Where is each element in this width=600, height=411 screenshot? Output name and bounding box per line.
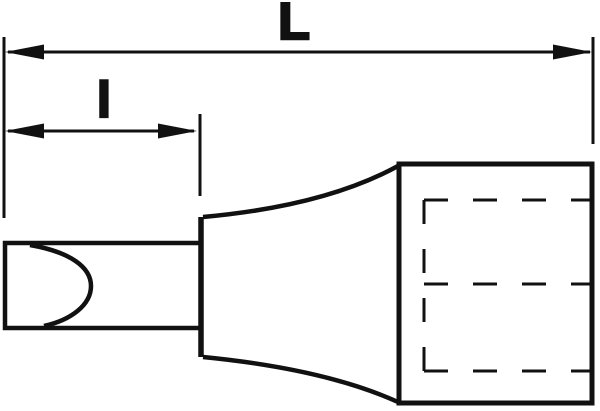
shaft-outline [5, 243, 200, 328]
dimension-label-overall-length: L [278, 0, 310, 51]
drawing-stage: L l [0, 0, 600, 411]
dimension-label-blade-length: l [97, 72, 111, 128]
hidden-square-drive-lines [424, 200, 592, 371]
arrowhead-L-left-icon [5, 45, 44, 60]
arrowhead-l-left-icon [5, 124, 44, 139]
blade-grind-arc [30, 245, 91, 326]
drawing-root: L l [4, 0, 593, 403]
technical-drawing-canvas: L l [0, 0, 600, 411]
bit-socket-outline [5, 164, 592, 403]
arrowhead-L-right-icon [553, 45, 592, 60]
arrowheads [5, 45, 592, 139]
taper-bottom-curve [203, 357, 398, 402]
dimension-labels: L l [97, 0, 310, 128]
taper-top-curve [203, 166, 398, 217]
arrowhead-l-right-icon [158, 124, 197, 139]
